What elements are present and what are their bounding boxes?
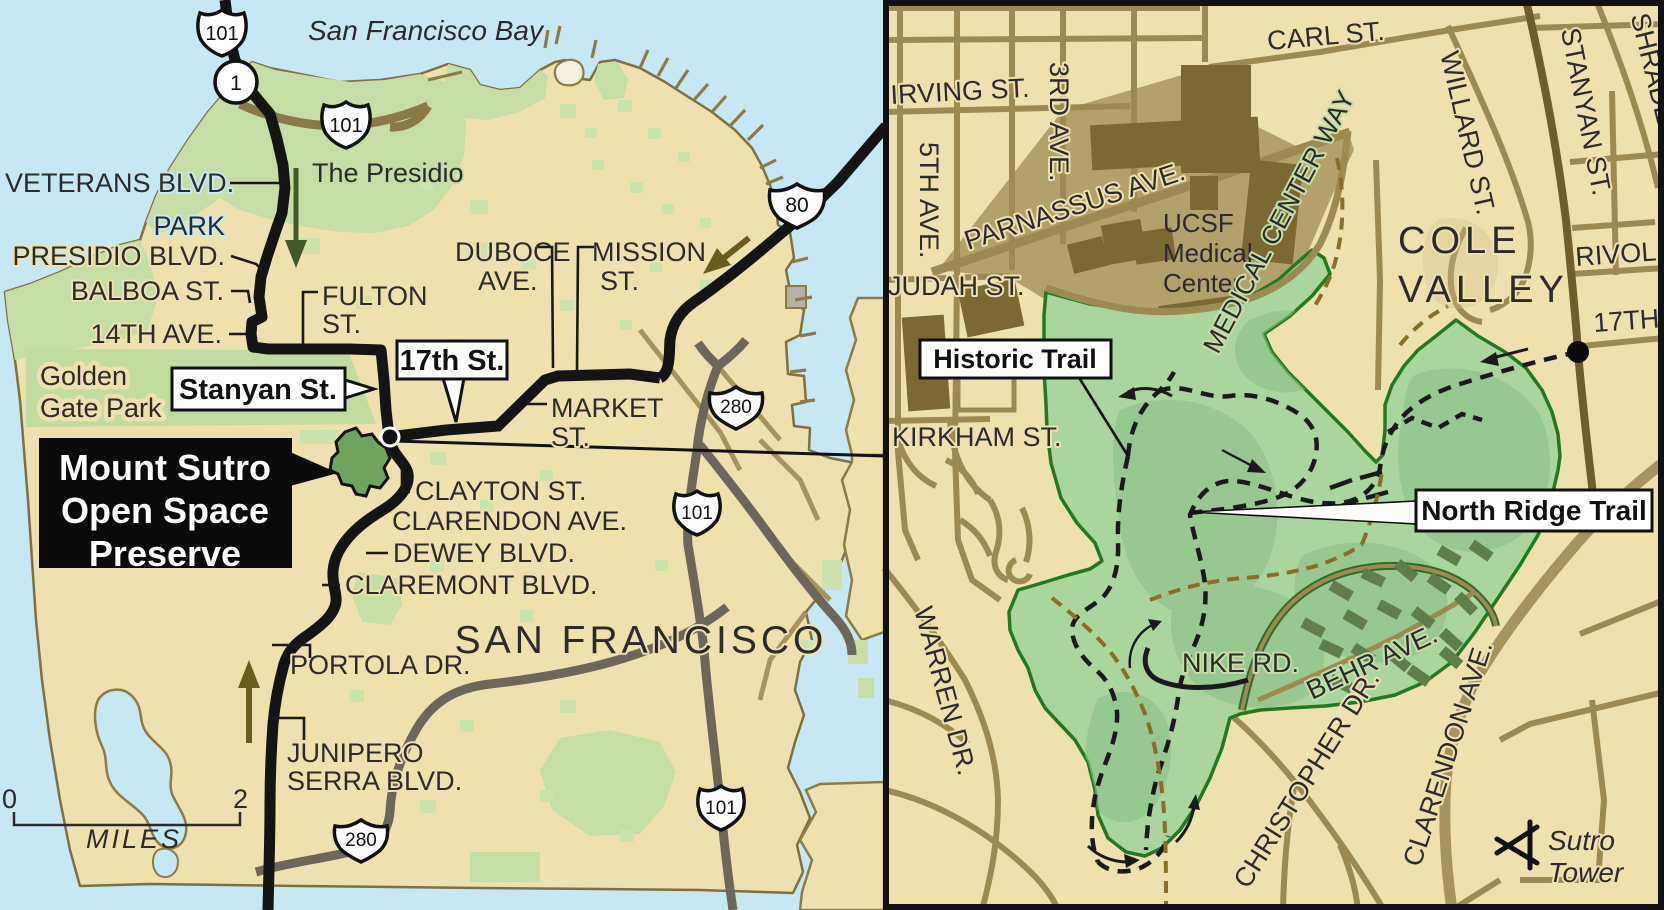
svg-text:MILES: MILES <box>86 824 182 854</box>
svg-text:FULTON: FULTON <box>322 281 428 311</box>
svg-text:The Presidio: The Presidio <box>312 158 464 188</box>
svg-text:COLE: COLE <box>1398 220 1521 262</box>
svg-text:2: 2 <box>233 784 248 814</box>
svg-text:BALBOA ST.: BALBOA ST. <box>71 276 224 306</box>
svg-text:San Francisco Bay: San Francisco Bay <box>308 15 545 46</box>
svg-text:Sutro: Sutro <box>1548 825 1615 856</box>
svg-text:280: 280 <box>345 830 377 851</box>
svg-text:AVE.: AVE. <box>478 266 538 296</box>
svg-text:UCSF: UCSF <box>1163 208 1234 238</box>
svg-text:North Ridge Trail: North Ridge Trail <box>1421 495 1647 526</box>
svg-text:SAN FRANCISCO: SAN FRANCISCO <box>455 619 828 662</box>
svg-text:MISSION: MISSION <box>592 237 706 267</box>
svg-text:101: 101 <box>705 798 737 819</box>
svg-text:KIRKHAM ST.: KIRKHAM ST. <box>892 422 1062 452</box>
svg-text:17th St.: 17th St. <box>400 345 505 377</box>
svg-text:101: 101 <box>681 503 713 524</box>
svg-text:ST.: ST. <box>551 422 590 452</box>
svg-text:PARK: PARK <box>153 211 225 241</box>
svg-text:MARKET: MARKET <box>551 393 664 423</box>
svg-text:Gate Park: Gate Park <box>40 393 162 423</box>
svg-text:CLAYTON ST.: CLAYTON ST. <box>415 476 587 506</box>
svg-text:3RD AVE.: 3RD AVE. <box>1044 62 1074 182</box>
svg-text:Stanyan St.: Stanyan St. <box>179 374 337 406</box>
svg-text:JUNIPERO: JUNIPERO <box>287 738 424 768</box>
svg-text:DEWEY BLVD.: DEWEY BLVD. <box>393 538 575 568</box>
svg-text:Tower: Tower <box>1548 857 1625 888</box>
svg-text:Preserve: Preserve <box>89 533 241 574</box>
svg-text:280: 280 <box>720 397 752 418</box>
svg-text:PRESIDIO BLVD.: PRESIDIO BLVD. <box>12 241 225 271</box>
svg-text:ST.: ST. <box>322 309 361 339</box>
svg-text:101: 101 <box>329 115 362 137</box>
svg-text:Historic Trail: Historic Trail <box>933 344 1097 374</box>
svg-text:CLAREMONT BLVD.: CLAREMONT BLVD. <box>345 570 598 600</box>
svg-text:JUDAH ST.: JUDAH ST. <box>888 271 1025 301</box>
svg-text:SERRA BLVD.: SERRA BLVD. <box>287 766 462 796</box>
svg-text:80: 80 <box>785 194 808 217</box>
svg-text:0: 0 <box>2 784 17 814</box>
svg-text:5TH AVE.: 5TH AVE. <box>914 142 944 259</box>
svg-text:Golden: Golden <box>40 361 127 391</box>
svg-text:NIKE RD.: NIKE RD. <box>1182 648 1299 678</box>
svg-text:14TH AVE.: 14TH AVE. <box>90 319 222 349</box>
svg-text:CLARENDON AVE.: CLARENDON AVE. <box>392 506 627 536</box>
svg-text:PORTOLA DR.: PORTOLA DR. <box>290 650 471 680</box>
svg-text:ST.: ST. <box>600 266 639 296</box>
svg-text:1: 1 <box>230 72 242 95</box>
svg-text:Mount Sutro: Mount Sutro <box>59 447 271 488</box>
svg-text:101: 101 <box>205 23 238 45</box>
svg-text:VETERANS BLVD.: VETERANS BLVD. <box>5 168 234 198</box>
svg-text:VALLEY: VALLEY <box>1398 269 1569 311</box>
svg-text:Open Space: Open Space <box>61 490 269 531</box>
